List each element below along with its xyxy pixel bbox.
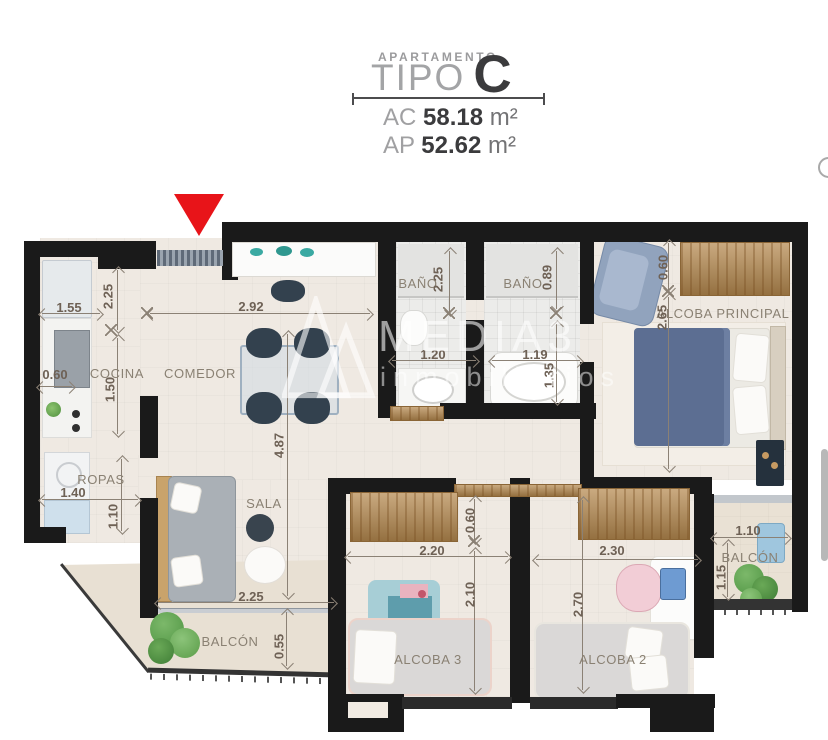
dim-line [474,551,475,691]
desk-chair [616,564,662,612]
ap-unit: m² [488,132,516,159]
dim-line [556,251,557,309]
dim-line [121,459,122,531]
dim-cross [141,307,153,319]
door-leaf [454,484,582,497]
dim-line [449,251,450,313]
wall [580,232,594,324]
wall [792,232,808,496]
dining-chair [246,328,282,358]
wall [440,403,596,419]
dim-text: 0.60 [35,367,75,382]
dim-text: 2.92 [231,299,271,314]
dim-text: 1.15 [714,558,729,598]
wall [466,232,484,300]
room-label-alcoba-principal: ALCOBA PRINCIPAL [648,306,798,321]
headboard [770,326,786,450]
coffee-table-white [244,546,286,584]
wall [140,396,158,458]
wall [98,255,156,269]
stove-burner [300,248,314,257]
room-label-balcon-izq: BALCÓN [190,634,270,649]
room-label-comedor: COMEDOR [160,366,240,381]
entrance-threshold [157,250,223,266]
sink-basin [250,248,263,256]
watermark-tagline: inmobiliarios [380,362,621,393]
dim-text: 2.30 [592,543,632,558]
area-ap-row: AP 52.62 m² [383,132,516,160]
room-label-alcoba3: ALCOBA 3 [388,652,468,667]
dim-cross [105,324,117,336]
ap-label: AP [383,132,415,159]
wall-notch [348,702,388,718]
plant-icon [148,638,174,664]
balcon-der-railing [712,599,794,610]
balcon-der-railing-ticks [712,610,794,615]
wall [222,222,808,242]
entrance-marker-icon [174,194,224,236]
toy-dot [418,590,426,598]
wall [650,708,714,732]
dim-text: 0.60 [656,248,671,288]
apartment-type-title: TIPO C [371,53,512,96]
dim-text: 1.10 [106,497,121,537]
scrollbar-thumb[interactable] [821,449,828,561]
stove-knob [72,410,80,418]
dim-text: 1.55 [49,300,89,315]
type-letter: C [473,53,511,96]
coffee-table-dark [246,514,274,542]
ac-value: 58.18 [423,104,483,131]
balcon-der-window [712,495,792,503]
floor-plan-page: APARTAMENTO TIPO C AC 58.18 m² AP 52.62 … [0,0,828,740]
wall [510,478,530,703]
room-label-alcoba2: ALCOBA 2 [573,652,653,667]
wall [694,494,714,658]
wall [24,527,66,543]
watermark-logo-icon [282,296,378,400]
dim-text: 2.10 [463,575,478,615]
wall [402,697,512,709]
wardrobe [578,488,690,540]
dim-text: 4.87 [272,426,287,466]
nightstand [756,440,784,486]
dim-text: 1.10 [728,523,768,538]
nightstand-knob [762,452,769,459]
dim-line [117,270,118,330]
dim-text: 2.25 [231,589,271,604]
wall [24,241,40,543]
dim-text: 0.60 [463,501,478,541]
dim-text: 2.25 [101,277,116,317]
ac-label: AC [383,104,416,131]
nightstand-knob [771,462,778,469]
bed-pillow [732,333,770,384]
door-leaf [390,406,444,421]
dim-text: 1.40 [53,485,93,500]
dim-text: 2.25 [431,260,446,300]
wall [616,694,715,708]
room-label-sala: SALA [234,496,294,511]
watermark-brand: MEDIA3 [378,312,578,362]
wall [792,496,808,612]
dining-chair [246,392,282,424]
area-ac-row: AC 58.18 m² [383,104,518,132]
bed-pillow [732,385,770,436]
dim-text: 0.55 [272,627,287,667]
dim-text: 1.50 [103,370,118,410]
sala-window [158,608,330,613]
dim-text: 2.70 [571,585,586,625]
sink-basin [276,246,292,256]
clipped-circle-icon [818,157,828,178]
ac-unit: m² [490,104,518,131]
dim-text: 0.89 [540,258,555,298]
wardrobe [680,242,790,296]
type-word: TIPO [371,59,465,96]
dim-line [536,559,698,560]
dim-line [40,386,72,387]
title-divider [352,97,545,99]
laptop [660,568,686,600]
sofa-pillow [170,554,204,588]
dim-text: 2.20 [412,543,452,558]
stove-knob [72,424,80,432]
ap-value: 52.62 [421,132,481,159]
wardrobe [350,492,458,542]
sofa-pillow [169,481,202,514]
dim-text: 2.65 [655,298,670,338]
wall [530,697,618,709]
wall [140,498,158,618]
bed-duvet [634,328,730,446]
plant-icon [46,402,61,417]
